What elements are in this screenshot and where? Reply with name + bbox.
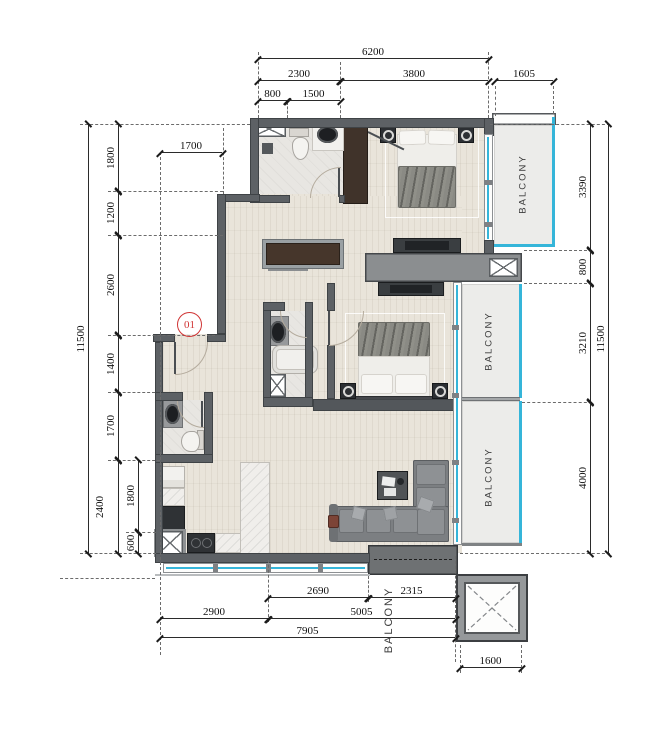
ext-line	[340, 62, 341, 118]
bathroom2-north-wall-a	[263, 302, 285, 311]
shower-head-icon	[262, 143, 273, 154]
bedroom2-west-wall-top	[327, 283, 335, 311]
hall-closet-counter-line	[268, 269, 308, 271]
kitchen-counter-left	[161, 488, 185, 506]
coffee-table-book	[382, 476, 396, 487]
dim-bottom-2900: 2900	[160, 618, 268, 619]
dim-bottom-7905: 7905	[160, 637, 455, 638]
bedroom2-west-wall-bot	[327, 345, 335, 399]
dim-bottom-2690: 2690	[268, 597, 368, 598]
dim-shaft-1600: 1600	[460, 667, 521, 668]
ext-line	[488, 52, 489, 118]
balcony-low-right-rail	[519, 401, 522, 543]
ext-line	[522, 402, 592, 403]
burner-icon	[202, 538, 212, 548]
ext-line	[80, 124, 250, 125]
window-mullion	[318, 564, 323, 572]
dim-left-1200: 1200	[118, 191, 119, 235]
speaker-cone-icon	[435, 386, 446, 397]
balcony-bottom-centerline	[374, 559, 452, 560]
dim-left-1400: 1400	[118, 335, 119, 392]
dim-top-3800: 3800	[340, 80, 488, 81]
dim-corridor-1700: 1700	[160, 152, 222, 153]
ext-line	[553, 86, 554, 114]
dim-left-2400: 2400	[118, 460, 119, 553]
west-wall-upper	[217, 194, 226, 334]
sofa-cushion	[417, 509, 445, 535]
ext-line	[108, 392, 155, 393]
dim-top-overall: 6200	[258, 58, 488, 59]
wardrobe-bedroom1	[343, 126, 368, 204]
dim-right-3210: 3210	[590, 283, 591, 402]
burner-icon	[191, 538, 201, 548]
bottom-sill-line	[155, 574, 370, 576]
ext-line	[455, 556, 456, 662]
ac-unit-x-icon	[489, 258, 518, 277]
balcony-label-bottom: BALCONY	[383, 587, 395, 654]
bed-1-pillow-right	[428, 130, 456, 146]
bedroom2-south-wall	[313, 399, 455, 411]
tv-screen-bedroom1	[405, 241, 449, 250]
bathroom3-south-wall	[155, 454, 213, 463]
window-mullion	[452, 325, 459, 330]
ext-line	[60, 578, 155, 579]
speaker-left-icon	[340, 383, 356, 399]
balcony-label-low-right: BALCONY	[484, 447, 495, 506]
dim-bottom-5005: 5005	[268, 618, 455, 619]
dim-left-inner-600: 600	[138, 532, 139, 553]
speaker-cone-icon	[343, 386, 354, 397]
ext-line	[524, 250, 592, 251]
fridge	[161, 466, 185, 488]
unit-number: 01	[184, 319, 195, 331]
ext-line	[108, 335, 215, 336]
bathroom1-south-wall	[259, 195, 290, 203]
dim-right-overall: 11500	[608, 124, 609, 553]
sofa-chaise-cushion	[416, 464, 446, 485]
elevator-x-icon	[464, 582, 520, 634]
living-window-glass	[456, 285, 458, 542]
ext-line	[287, 102, 288, 118]
bottom-wall	[155, 553, 370, 563]
ext-line	[108, 191, 223, 192]
bed-1-pillow-left	[399, 130, 427, 146]
window-mullion	[452, 393, 459, 398]
balcony-top-right-rail-bottom	[494, 244, 555, 247]
ext-line	[258, 52, 259, 118]
toilet-3-bowl	[181, 431, 200, 452]
bathroom3-east-wall	[204, 392, 213, 460]
bed-1-blanket	[398, 166, 456, 208]
side-plant-icon	[328, 515, 339, 528]
dim-top-1500: 1500	[287, 100, 340, 101]
ext-line	[108, 460, 160, 461]
bed-2-blanket	[358, 322, 430, 358]
basin-1-icon	[317, 126, 338, 143]
west-wall-lower	[155, 342, 163, 563]
dim-left-inner-1800: 1800	[138, 460, 139, 532]
balcony-label-mid-right: BALCONY	[484, 311, 495, 370]
bathroom2-west-wall	[263, 302, 271, 405]
bed-2-pillow-left	[361, 374, 393, 394]
coffee-table-decor-icon	[397, 478, 404, 485]
kitchen-island	[240, 462, 270, 554]
sofa-pillow	[383, 506, 398, 521]
dim-left-2600: 2600	[118, 235, 119, 335]
dim-right-4000: 4000	[590, 402, 591, 553]
unit-number-badge: 01	[177, 312, 202, 337]
balcony-top-right-rail	[552, 117, 555, 246]
ext-line	[495, 86, 496, 116]
east-wall-bot-stub	[484, 240, 494, 254]
window-mullion	[213, 564, 218, 572]
balcony-bottom-slab	[368, 545, 458, 575]
window-mullion	[452, 460, 459, 465]
floor-plan: 6200 2300 3800 1605 800 1500 1700 11500 …	[0, 0, 671, 740]
hall-closet	[266, 243, 340, 265]
balcony-low-edge	[462, 543, 522, 546]
dim-top-800: 800	[258, 100, 287, 101]
oven	[161, 506, 185, 530]
ext-line	[160, 152, 161, 655]
top-wall	[250, 118, 492, 128]
nightstand-right-icon	[458, 127, 474, 143]
toilet-1-tank	[289, 128, 309, 137]
window-mullion	[452, 518, 459, 523]
bed-2-pillow-right	[395, 374, 427, 394]
window-mullion	[484, 180, 493, 185]
dim-top-2300: 2300	[258, 80, 340, 81]
bathroom1-west-wall	[250, 118, 259, 203]
dim-left-1700: 1700	[118, 392, 119, 460]
dim-top-1605: 1605	[495, 80, 553, 81]
dim-right-3390: 3390	[590, 124, 591, 250]
balcony-mid-right-rail	[519, 284, 522, 398]
ext-line	[223, 128, 224, 194]
coffee-table-book	[384, 488, 396, 496]
dim-bottom-2315: 2315	[368, 597, 455, 598]
dim-left-overall: 11500	[88, 124, 89, 553]
dim-left-1800: 1800	[118, 124, 119, 191]
ext-line	[108, 235, 223, 236]
dim-right-800: 800	[590, 250, 591, 283]
lamp-icon	[461, 130, 472, 141]
ext-line	[268, 560, 269, 622]
ext-line	[524, 283, 592, 284]
bathroom2-south-wall	[263, 397, 313, 407]
speaker-right-icon	[432, 383, 448, 399]
ext-line	[460, 553, 610, 554]
balcony-label-top-right: BALCONY	[518, 154, 529, 213]
tv-screen-bedroom2	[390, 285, 432, 293]
window-mullion	[484, 222, 493, 227]
